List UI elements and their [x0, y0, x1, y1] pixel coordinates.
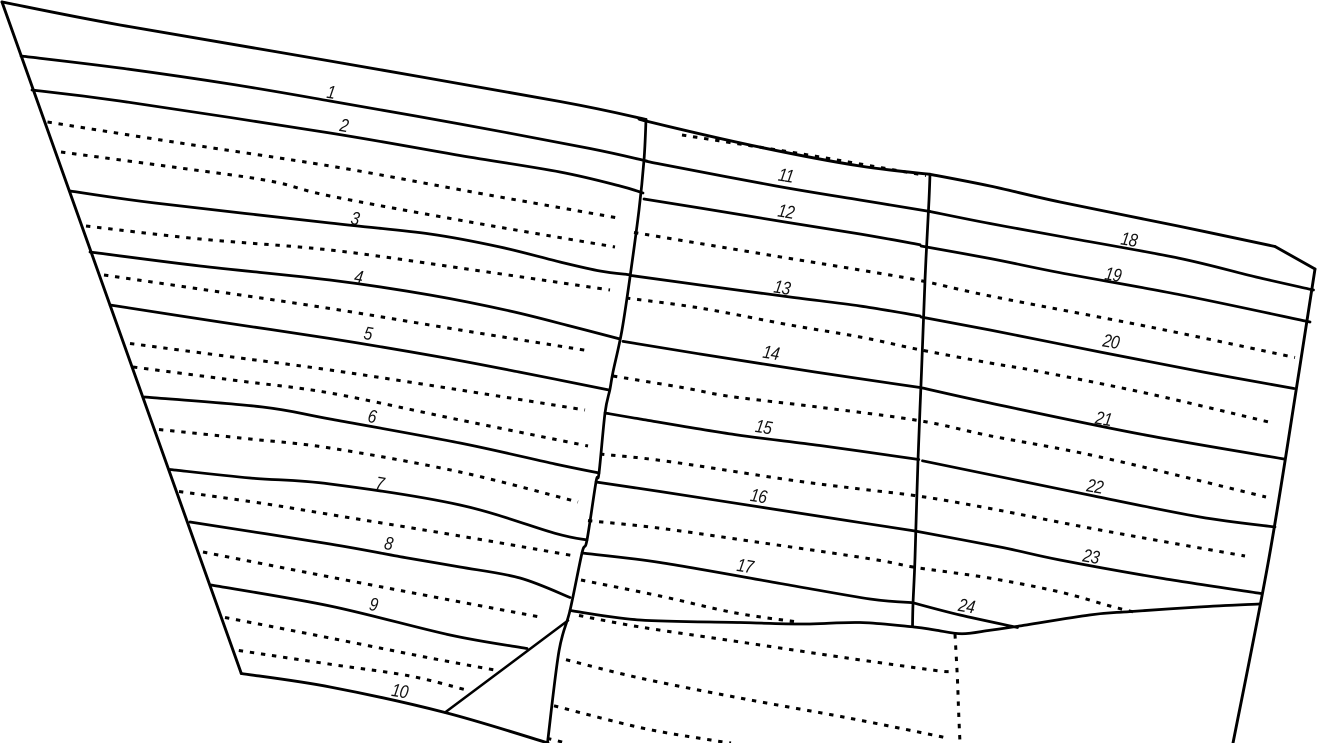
svg-text:24: 24	[956, 595, 976, 618]
svg-text:14: 14	[761, 342, 781, 365]
svg-text:21: 21	[1093, 407, 1113, 430]
